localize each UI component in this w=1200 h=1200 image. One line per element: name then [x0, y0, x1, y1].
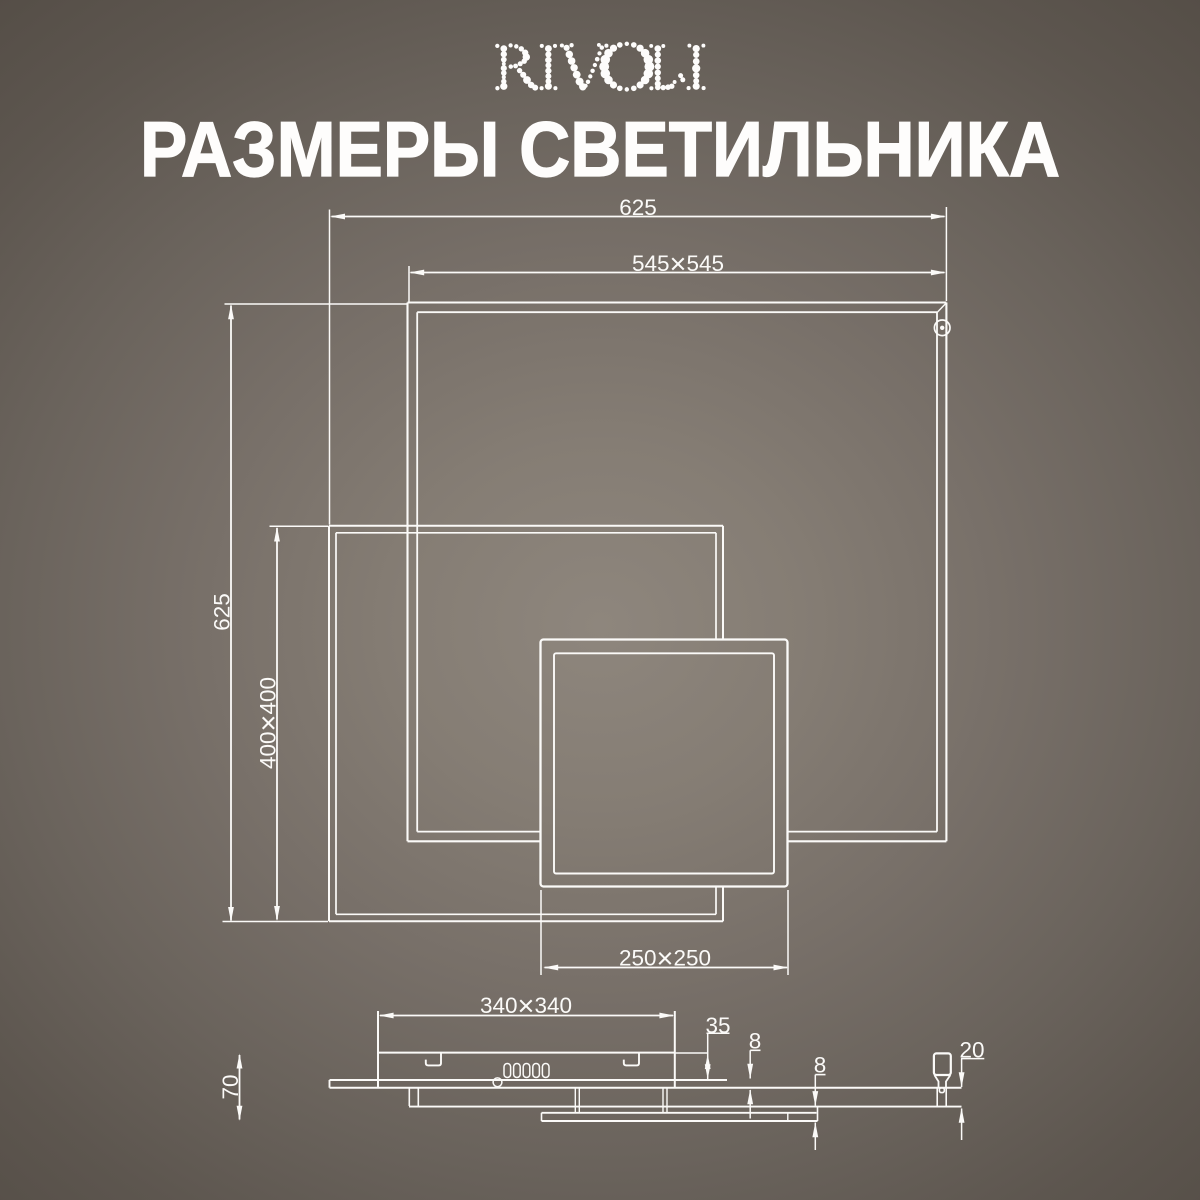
- svg-text:625: 625: [619, 195, 657, 220]
- svg-text:625: 625: [210, 593, 235, 631]
- svg-text:8: 8: [814, 1053, 827, 1078]
- svg-text:400×400: 400×400: [253, 677, 285, 769]
- svg-text:70: 70: [218, 1074, 243, 1099]
- svg-text:545×545: 545×545: [632, 249, 724, 281]
- svg-text:35: 35: [705, 1013, 730, 1038]
- svg-text:340×340: 340×340: [480, 991, 572, 1023]
- svg-text:250×250: 250×250: [619, 943, 711, 975]
- svg-text:РАЗМЕРЫ СВЕТИЛЬНИКА: РАЗМЕРЫ СВЕТИЛЬНИКА: [140, 105, 1060, 193]
